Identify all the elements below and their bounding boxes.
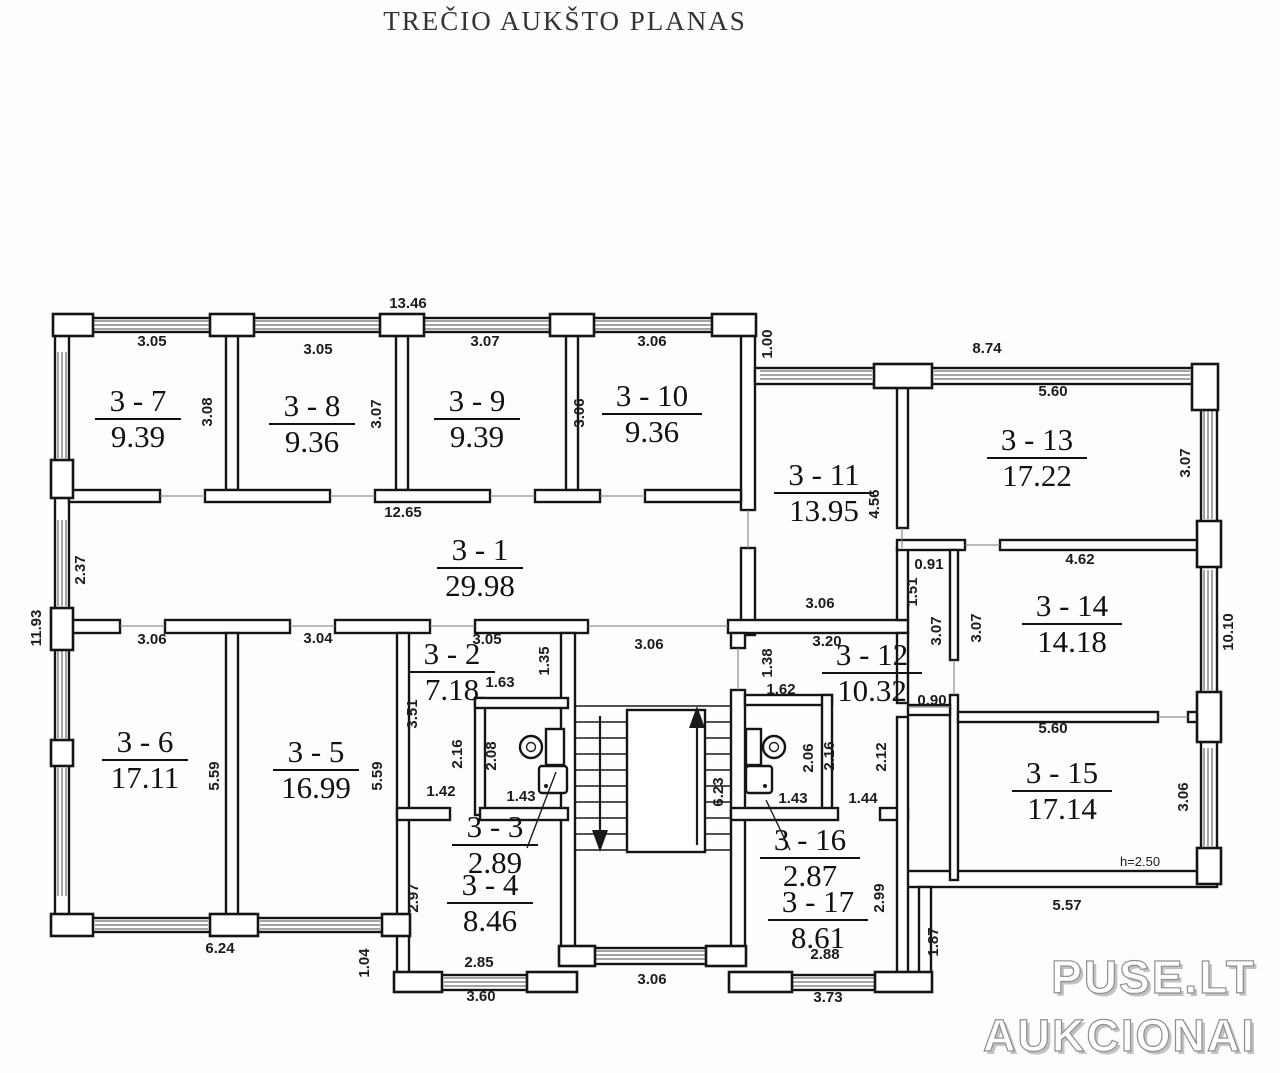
room-area: 17.11 <box>111 760 180 795</box>
room-number: 3 - 17 <box>782 884 854 919</box>
dimension-label: 3.73 <box>813 989 842 1006</box>
dimension-label: 3.06 <box>805 595 834 612</box>
room-area: 9.39 <box>450 419 504 454</box>
room-area: 10.32 <box>837 673 907 708</box>
dimension-label: 2.16 <box>821 741 838 770</box>
room-label: 3 - 1317.22 <box>987 422 1087 493</box>
room-number: 3 - 10 <box>616 378 688 413</box>
room-labels: 3 - 79.393 - 89.363 - 99.393 - 109.363 -… <box>95 378 1122 955</box>
dimension-label: 1.42 <box>426 783 455 800</box>
dimension-label: 3.07 <box>1177 448 1194 477</box>
toilet-icon-left <box>520 729 564 765</box>
room-number: 3 - 15 <box>1026 755 1098 790</box>
room-area: 17.22 <box>1002 458 1072 493</box>
room-label: 3 - 109.36 <box>602 378 702 449</box>
room-area: 8.46 <box>463 903 517 938</box>
room-number: 3 - 5 <box>288 734 345 769</box>
dimension-label: 1.00 <box>759 329 776 358</box>
room-area: 17.14 <box>1027 791 1097 826</box>
room-area: 9.36 <box>285 424 339 459</box>
room-label: 3 - 1414.18 <box>1022 588 1122 659</box>
room-number: 3 - 14 <box>1036 588 1109 623</box>
dimension-label: 3.06 <box>1175 782 1192 811</box>
dimension-label: 1.63 <box>485 674 514 691</box>
dimension-label: 12.65 <box>384 504 422 521</box>
floor-plan-page: TREČIO AUKŠTO PLANAS <box>0 0 1280 1073</box>
dimension-label: 1.43 <box>506 788 535 805</box>
dimension-label: 2.16 <box>449 739 466 768</box>
dimension-label: 3.05 <box>303 341 332 358</box>
dimension-label: 5.60 <box>1038 720 1067 737</box>
room-area: 9.39 <box>111 419 165 454</box>
dimension-label: 2.06 <box>800 743 817 772</box>
dimension-label: 3.06 <box>637 971 666 988</box>
watermark-line1: PUSE.LT <box>1051 951 1256 1003</box>
watermark: PUSE.LT AUKCIONAI PUSE.LT AUKCIONAI <box>983 951 1259 1064</box>
dimension-label: 3.60 <box>466 988 495 1005</box>
dimension-label: 2.12 <box>873 742 890 771</box>
dimension-label: 3.05 <box>472 631 501 648</box>
dimension-label: 3.07 <box>968 613 985 642</box>
dimension-label: 1.04 <box>356 948 373 978</box>
room-area: 13.95 <box>789 493 859 528</box>
dimension-label: 3.05 <box>137 333 166 350</box>
dimension-label: 8.74 <box>972 340 1002 357</box>
dimension-label: 3.20 <box>812 633 841 650</box>
room-number: 3 - 1 <box>452 532 509 567</box>
toilet-icon-right <box>746 729 785 765</box>
dimension-label: 3.07 <box>368 399 385 428</box>
room-area: 7.18 <box>425 672 479 707</box>
dimension-label: 3.07 <box>928 616 945 645</box>
stair-down-arrow-head <box>592 830 608 852</box>
dimension-label: 3.04 <box>303 630 333 647</box>
staircase <box>575 706 731 852</box>
dimension-label: 3.06 <box>137 631 166 648</box>
room-number: 3 - 7 <box>110 383 167 418</box>
floor-plan-drawing: TREČIO AUKŠTO PLANAS <box>0 0 1280 1073</box>
room-label: 3 - 178.61 <box>768 884 868 955</box>
dimension-label: 2.97 <box>405 883 422 912</box>
room-label: 3 - 89.36 <box>269 388 355 459</box>
dimension-label: 1.87 <box>925 927 942 956</box>
dimension-label: 5.57 <box>1052 897 1081 914</box>
dimension-label: 3.06 <box>571 398 588 427</box>
stair-stringer <box>627 710 705 852</box>
door-openings <box>120 496 1188 717</box>
room-number: 3 - 13 <box>1001 422 1073 457</box>
dimension-label: 2.88 <box>810 946 839 963</box>
room-label: 3 - 516.99 <box>273 734 359 805</box>
room-label: 3 - 1113.95 <box>774 457 874 528</box>
dimension-label: 1.44 <box>848 790 878 807</box>
dimension-label: 10.10 <box>1220 613 1237 651</box>
dimension-label: 0.91 <box>914 556 943 573</box>
dimension-label: 5.59 <box>369 761 386 790</box>
dimension-label: 1.43 <box>778 790 807 807</box>
dimension-label: 1.38 <box>759 648 776 677</box>
dimension-label: 11.93 <box>28 610 45 647</box>
dimension-label: 3.06 <box>634 636 663 653</box>
room-label: 3 - 162.87 <box>760 822 860 893</box>
dimension-label: 6.24 <box>205 940 235 957</box>
dimension-label: 2.85 <box>464 954 493 971</box>
room-label: 3 - 129.98 <box>437 532 523 603</box>
room-number: 3 - 4 <box>462 867 519 902</box>
dimension-label: 1.35 <box>536 646 553 675</box>
dimension-label: 3.06 <box>637 333 666 350</box>
dimension-label: 6.23 <box>710 777 727 806</box>
room-number: 3 - 16 <box>774 822 846 857</box>
room-number: 3 - 11 <box>788 457 859 492</box>
room-number: 3 - 9 <box>449 383 506 418</box>
dimension-label: 4.56 <box>866 489 883 518</box>
dimension-label: 3.07 <box>470 333 499 350</box>
room-label: 3 - 1517.14 <box>1012 755 1112 826</box>
dimension-label: h=2.50 <box>1120 854 1160 869</box>
dimension-label: 5.60 <box>1038 383 1067 400</box>
room-area: 14.18 <box>1037 624 1107 659</box>
plan-title: TREČIO AUKŠTO PLANAS <box>383 6 747 36</box>
room-area: 16.99 <box>281 770 351 805</box>
dimension-label: 0.90 <box>917 692 946 709</box>
room-label: 3 - 617.11 <box>102 724 188 795</box>
dimension-label: 1.62 <box>766 681 795 698</box>
room-label: 3 - 99.39 <box>434 383 520 454</box>
dimension-label: 13.46 <box>389 295 427 312</box>
sink-icon-right <box>746 766 772 793</box>
dimension-label: 2.08 <box>483 741 500 770</box>
dimension-label: 4.62 <box>1065 551 1094 568</box>
room-label: 3 - 79.39 <box>95 383 181 454</box>
room-number: 3 - 12 <box>836 637 908 672</box>
dimension-label: 3.51 <box>404 699 421 728</box>
room-number: 3 - 8 <box>284 388 341 423</box>
room-area: 9.36 <box>625 414 679 449</box>
dimension-label: 5.59 <box>206 761 223 790</box>
dimension-label: 1.51 <box>904 577 921 606</box>
room-number: 3 - 3 <box>467 809 524 844</box>
dimension-label: 2.99 <box>871 883 888 912</box>
room-area: 29.98 <box>445 568 515 603</box>
watermark-line2: AUKCIONAI <box>983 1010 1256 1061</box>
room-number: 3 - 6 <box>117 724 174 759</box>
dimension-label: 3.08 <box>199 397 216 426</box>
dimension-label: 2.37 <box>72 555 89 584</box>
